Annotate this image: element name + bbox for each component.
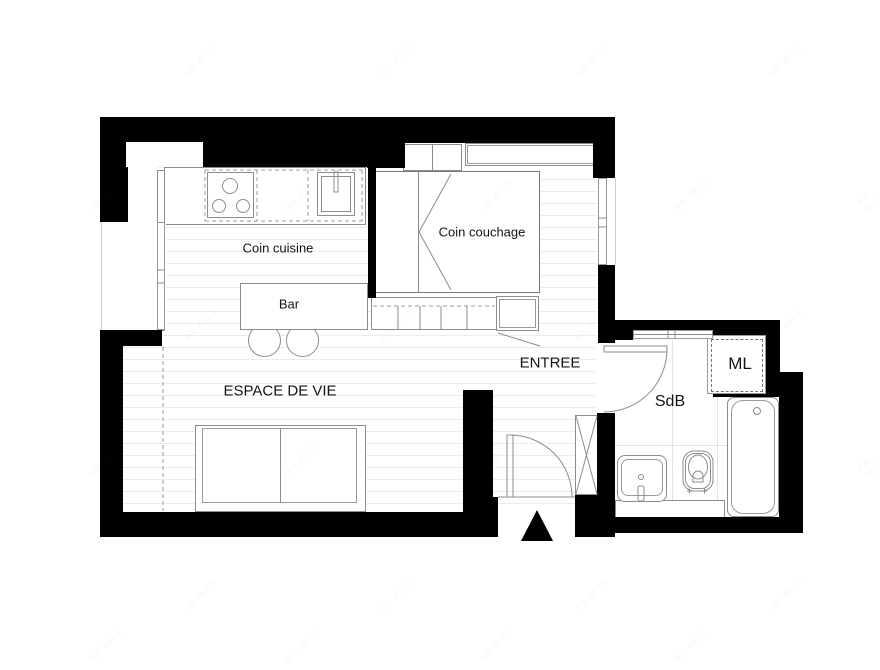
watermark-text: mh deco	[283, 177, 319, 213]
watermark-text: mh deco	[183, 42, 219, 78]
watermark-text: mh deco	[378, 577, 414, 613]
watermark-text: mh deco	[854, 185, 880, 216]
watermark-text: mh deco	[478, 627, 514, 663]
watermark-text: mh deco	[283, 627, 319, 663]
watermark-text: mh deco	[378, 307, 414, 343]
floor-plan-canvas: Coin cuisine Bar Coin couchage ESPACE DE…	[0, 0, 880, 670]
watermark-text: mh deco	[673, 442, 709, 478]
watermark-text: mh deco	[88, 442, 124, 478]
watermark-text: mh deco	[573, 577, 609, 613]
watermark-text: mh deco	[573, 42, 609, 78]
watermark-text: mh deco	[88, 627, 124, 663]
watermark-text: mh deco	[768, 307, 804, 343]
watermark-text: mh deco	[768, 42, 804, 78]
watermark-text: mh deco	[378, 42, 414, 78]
watermark-text: mh deco	[854, 450, 880, 481]
watermark-text: mh deco	[673, 627, 709, 663]
watermark-text: mh deco	[183, 307, 219, 343]
watermark-text: mh deco	[183, 577, 219, 613]
watermark-text: mh deco	[478, 442, 514, 478]
watermark-layer: mh decomh decomh decomh decomh decomh de…	[0, 0, 880, 670]
watermark-text: mh deco	[573, 307, 609, 343]
watermark-text: mh deco	[88, 177, 124, 213]
watermark-text: mh deco	[283, 442, 319, 478]
watermark-text: mh deco	[768, 577, 804, 613]
watermark-text: mh deco	[478, 177, 514, 213]
watermark-text: mh deco	[673, 177, 709, 213]
